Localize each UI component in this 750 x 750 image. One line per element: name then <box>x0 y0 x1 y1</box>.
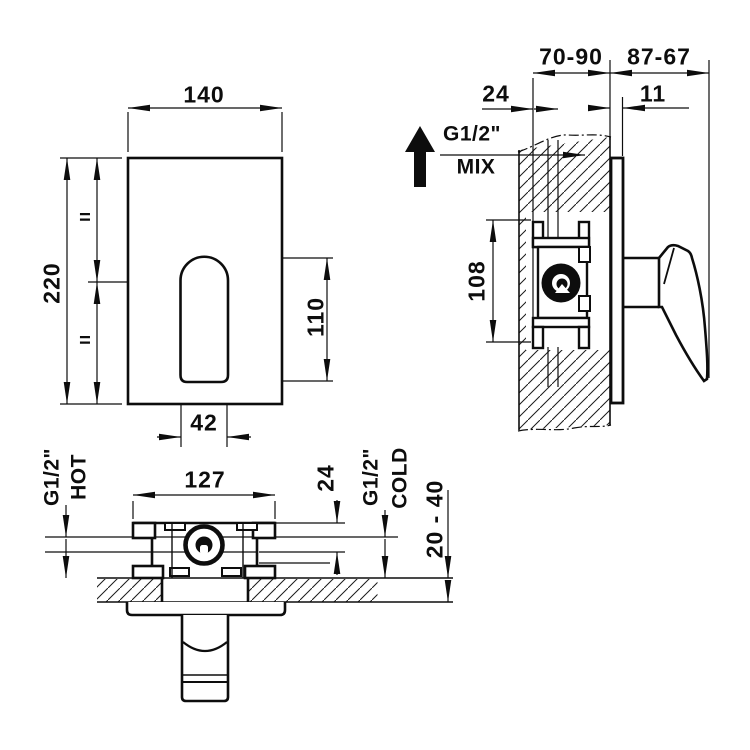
dim-equal-bottom: = <box>79 331 91 351</box>
front-view <box>60 108 333 447</box>
wall-band-hatch-right <box>249 579 378 602</box>
dim-pipe-offset: 24 <box>482 83 510 106</box>
side-view <box>405 60 709 431</box>
drawing-geometry <box>0 0 750 750</box>
dim-front-width: 140 <box>183 84 224 107</box>
dim-protrusion: 87-67 <box>627 46 691 69</box>
top-view <box>45 490 453 701</box>
dim-rough-in-depth: 70-90 <box>539 46 603 69</box>
label-cold: COLD <box>390 447 411 509</box>
technical-drawing-page: 140 220 = = 110 42 70-90 87-67 24 11 G1/… <box>0 0 750 750</box>
wall-band-hatch-left <box>97 579 162 602</box>
label-hot-thread: G1/2" <box>42 448 63 506</box>
top-plate <box>127 602 285 615</box>
dim-front-height: 220 <box>41 262 64 303</box>
dim-slot-height: 110 <box>305 297 328 337</box>
mix-direction-arrow-icon <box>405 126 435 187</box>
top-handle <box>182 615 228 701</box>
side-lever <box>623 245 707 381</box>
label-mix-thread: G1/2" <box>443 124 501 145</box>
dim-equal-top: = <box>79 208 91 228</box>
dim-plate-offset: 11 <box>640 83 666 106</box>
label-hot: HOT <box>69 454 90 500</box>
dim-body-width: 127 <box>184 469 225 492</box>
dim-center-offset: 24 <box>315 464 338 492</box>
label-cold-thread: G1/2" <box>361 448 382 506</box>
dim-wall-thickness: 20 - 40 <box>424 480 447 559</box>
front-handle-slot <box>181 257 229 382</box>
dim-body-height: 108 <box>466 260 489 301</box>
label-mix: MIX <box>457 157 496 178</box>
side-plate <box>611 158 623 403</box>
dim-slot-width: 42 <box>190 412 218 435</box>
